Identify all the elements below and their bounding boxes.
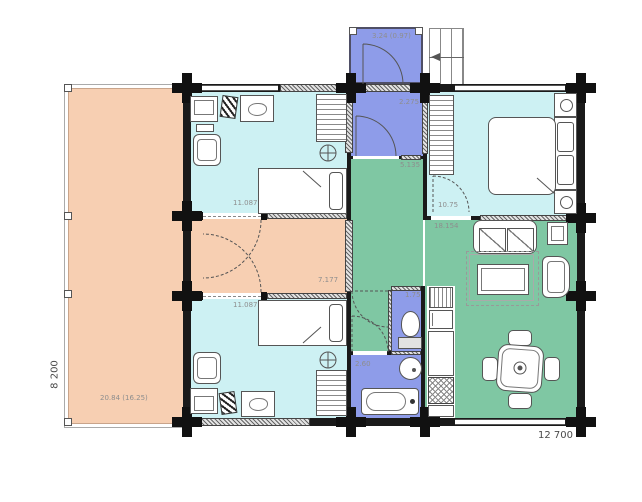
window-living	[455, 419, 565, 425]
sofa-cushion	[479, 228, 506, 252]
dimension-height: 8 200	[50, 340, 61, 410]
porch-post	[349, 27, 357, 35]
log-joint	[172, 281, 202, 311]
master-door-gap	[431, 216, 471, 220]
bathroom-sink	[399, 357, 422, 380]
stairs-direction-line	[429, 57, 464, 58]
opening-hall-bedroombottom	[267, 293, 347, 299]
dining-chair	[544, 357, 560, 381]
log-joint	[566, 281, 596, 311]
wardrobe	[316, 94, 347, 142]
sink-drain	[412, 368, 416, 372]
desk	[190, 388, 218, 414]
shelf-item	[219, 391, 238, 415]
wardrobe	[429, 95, 454, 175]
office-chair	[193, 352, 221, 384]
bathroom-door-gap	[353, 351, 387, 355]
entrance-door-threshold	[358, 84, 414, 92]
dining-table	[495, 343, 544, 393]
wall-bath-kitchen	[421, 286, 425, 418]
toilet-tank	[398, 337, 422, 349]
printer	[196, 124, 214, 132]
dining-chair	[508, 393, 532, 409]
hall	[191, 216, 349, 296]
coffee-table	[477, 264, 529, 295]
desk	[190, 96, 218, 122]
shelf-item	[220, 95, 239, 119]
side-table	[547, 222, 568, 245]
area-label-terrace: 20.84 (16.25)	[100, 394, 148, 402]
shelf-box	[241, 391, 275, 417]
pillow	[329, 172, 343, 210]
wardrobe	[316, 370, 347, 416]
stove	[428, 377, 454, 404]
pillow	[329, 304, 343, 342]
bathtub-faucet	[410, 399, 415, 404]
area-label-hall: 7.177	[318, 276, 338, 284]
window-master	[455, 85, 565, 91]
nightstand	[554, 190, 577, 214]
pillow	[557, 122, 574, 152]
kitchen-cabinet	[428, 405, 454, 417]
wc-wall-left	[388, 290, 392, 351]
double-bed-mattress	[488, 117, 556, 195]
opening-hall-right	[345, 220, 353, 292]
terrace	[68, 88, 185, 424]
wc-opening-bottom	[391, 351, 421, 355]
floorplan-canvas: 11.087 7.177 11.087 2.275 5.135 10.75 18…	[0, 0, 642, 502]
fridge	[429, 310, 453, 329]
toilet-bowl	[401, 311, 420, 337]
kitchen-counter	[428, 331, 454, 376]
terrace-post	[64, 212, 72, 220]
opening-bedroom-bottom	[198, 418, 310, 426]
area-label-master: 10.75	[438, 201, 458, 209]
area-label-wc: 1.75	[405, 291, 421, 299]
kitchen-radiator	[429, 287, 453, 308]
dimension-width: 12 700	[538, 430, 573, 441]
area-label-porch: 3.24 (0.97)	[372, 32, 411, 40]
opening-entry-right	[422, 96, 428, 154]
wall-left	[183, 84, 191, 426]
entry-opening-bottom	[401, 155, 421, 160]
area-label-living: 18.154	[434, 222, 459, 230]
window-bedroom-top	[200, 85, 278, 91]
area-label-corridor: 5.135	[400, 161, 420, 169]
terrace-post	[64, 418, 72, 426]
sofa-cushion	[507, 228, 534, 252]
wall-right	[577, 84, 585, 426]
shelf-box	[240, 95, 274, 122]
hall-door-dash-top	[203, 216, 261, 217]
pillow	[557, 155, 574, 185]
area-label-bedroom-top: 11.087	[233, 199, 258, 207]
office-chair	[193, 134, 221, 166]
area-label-entry-hall: 2.275	[399, 98, 419, 106]
porch-post	[415, 27, 423, 35]
armchair	[542, 256, 570, 298]
hall-door-dash-bottom	[203, 296, 261, 297]
area-label-bathroom: 2.60	[355, 360, 371, 368]
area-label-bedroom-bottom: 11.087	[233, 301, 258, 309]
terrace-post	[64, 290, 72, 298]
log-joint	[172, 201, 202, 231]
nightstand	[554, 93, 577, 117]
terrace-post	[64, 84, 72, 92]
entry-door-gap	[353, 156, 399, 159]
